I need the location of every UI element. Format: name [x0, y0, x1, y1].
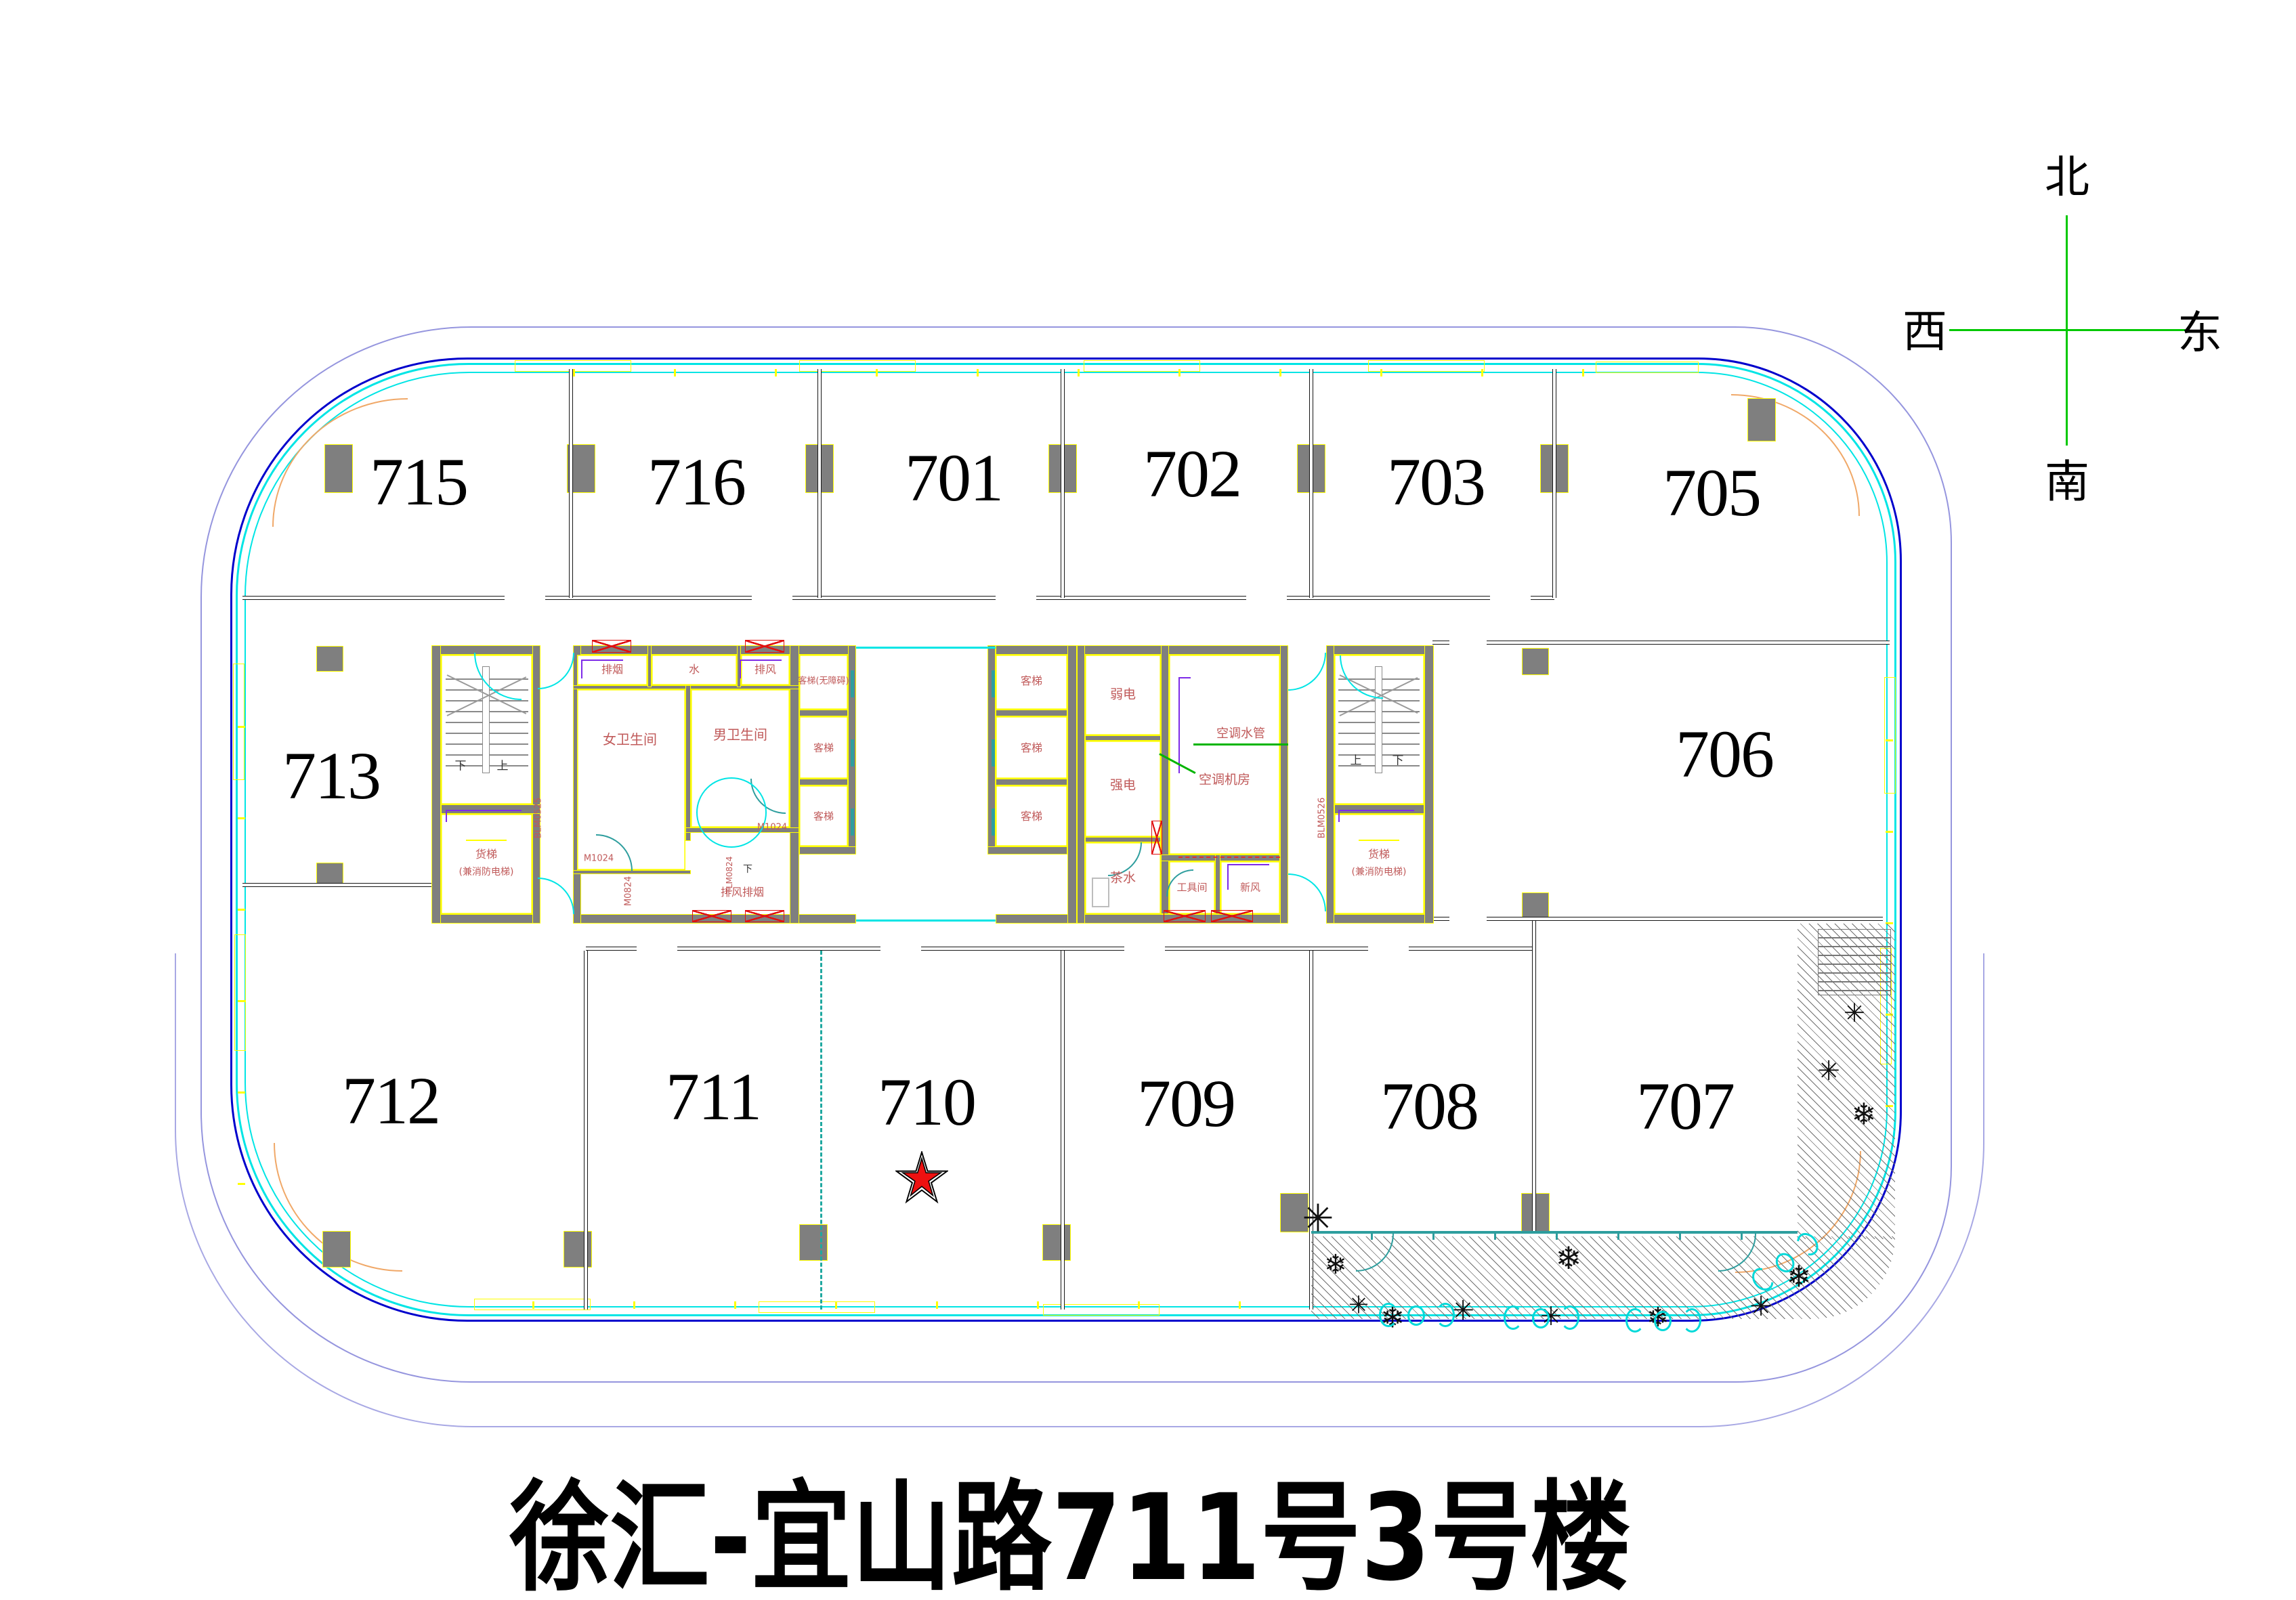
mullion-box: [233, 664, 245, 780]
gw: [1280, 645, 1288, 924]
fire-damper-icon: [745, 640, 784, 653]
sink: [1092, 878, 1109, 907]
floor-plan: ✳ ❄ ❄ ✳ ❄ ✳ ❄ ✳ ❄ ✳ ❄ ✳ ✳ 715 716 701 70…: [0, 0, 2296, 1600]
gap: [1124, 945, 1165, 952]
door-tag: M0824: [624, 876, 633, 906]
partition-wall: [1432, 917, 1883, 921]
mullion-box: [759, 1301, 875, 1313]
plant: ✳: [1302, 1197, 1334, 1241]
room-713-label: 713: [282, 742, 380, 810]
door-tag: M1024: [757, 823, 787, 832]
freight-lift-note: (兼消防电梯): [1352, 867, 1407, 877]
lift-label: 客梯: [813, 743, 834, 754]
room-705-label: 705: [1663, 459, 1760, 527]
gw: [996, 710, 1067, 716]
partition-wall: [1061, 951, 1065, 1310]
gap: [1449, 639, 1487, 646]
wc-women-label: 女卫生间: [603, 733, 657, 746]
plant: ✳: [1844, 998, 1865, 1028]
slit: [851, 670, 854, 697]
gw: [431, 914, 540, 924]
fu: [1682, 1308, 1701, 1333]
room-715-label: 715: [370, 448, 467, 516]
column: [322, 1231, 351, 1268]
room-716-label: 716: [647, 448, 745, 516]
gap: [1368, 945, 1409, 952]
dashed-partition: [820, 951, 822, 1310]
slit: [851, 808, 854, 836]
room-708-label: 708: [1380, 1073, 1478, 1140]
furniture-set: [1625, 1305, 1704, 1337]
partition-wall: [569, 369, 573, 598]
terrace-stair-icon: [1818, 929, 1891, 995]
lift-label: 客梯: [813, 812, 834, 822]
column: [324, 444, 353, 493]
plant: ✳: [1348, 1292, 1369, 1320]
mullion-box: [1596, 362, 1699, 373]
partition-wall: [242, 883, 433, 887]
freight-lift-west: [441, 814, 532, 914]
lift-accessible-label: 客梯(无障碍): [798, 677, 849, 686]
gw: [1067, 645, 1077, 924]
room-706-label: 706: [1676, 720, 1773, 788]
gw: [685, 685, 691, 841]
gw: [1161, 855, 1280, 861]
partition-wall: [584, 951, 588, 1310]
lift-label: 客梯: [1021, 676, 1042, 687]
compass-line-horizontal: [1949, 329, 2185, 331]
room-710-label: 710: [878, 1068, 975, 1136]
gap: [752, 594, 792, 601]
mullion-box: [799, 360, 916, 372]
fu: [1625, 1308, 1644, 1333]
furniture-set: [1504, 1303, 1582, 1334]
mullion-box: [1368, 360, 1485, 372]
stair-up-label: 上: [497, 761, 509, 773]
compass-west: 西: [1902, 309, 1947, 354]
furniture-set: [1379, 1300, 1458, 1331]
mullion-box: [474, 1299, 591, 1310]
slit: [851, 739, 854, 766]
room-707-label: 707: [1636, 1073, 1734, 1140]
abs: [856, 647, 996, 649]
mullion-box: [1084, 360, 1200, 372]
fu: [1504, 1305, 1523, 1330]
gw: [1326, 645, 1334, 924]
fu: [1560, 1305, 1579, 1330]
gw: [996, 779, 1067, 785]
pipe-icon: [1338, 810, 1414, 822]
gw: [996, 645, 1288, 655]
gw: [1161, 645, 1169, 914]
column: [1522, 892, 1549, 920]
freight-lift-label: 货梯: [475, 849, 497, 860]
gw: [799, 846, 856, 855]
door-tag: BLM0525: [534, 798, 543, 838]
gap: [1246, 594, 1287, 601]
freight-lift-label: 货梯: [1368, 849, 1390, 860]
room-702-label: 702: [1143, 440, 1241, 508]
door-tag: M1024: [584, 855, 614, 863]
fire-damper-icon: [745, 910, 784, 922]
mullion-box: [234, 934, 246, 1051]
wc-women: [577, 689, 685, 870]
partition-wall: [1061, 369, 1065, 598]
fire-damper-icon: [592, 640, 631, 653]
ac-room-label: 空调机房: [1199, 774, 1250, 787]
gap: [505, 594, 545, 601]
fu: [1772, 1249, 1798, 1276]
tea-room-label: 茶水: [1110, 872, 1136, 885]
slit: [992, 808, 995, 836]
slit: [992, 670, 995, 697]
gw: [431, 645, 441, 924]
plant: ❄: [1556, 1240, 1582, 1276]
compass-south: 南: [2045, 460, 2089, 504]
abs: [856, 920, 996, 922]
weak-power-label: 弱电: [1110, 689, 1136, 701]
mullion-box: [1884, 677, 1896, 794]
fire-damper-icon: [1151, 821, 1162, 855]
plant: ❄: [1324, 1249, 1347, 1280]
partition-wall: [1552, 369, 1556, 598]
room-711-label: 711: [666, 1063, 761, 1131]
plant: ✳: [1749, 1291, 1772, 1322]
gw: [1085, 837, 1161, 842]
room-701-label: 701: [905, 444, 1002, 512]
gap: [880, 945, 921, 952]
greenln: [1193, 743, 1288, 745]
mullion-box: [515, 360, 631, 372]
fire-damper-icon: [1164, 910, 1206, 922]
shaft-water-label: 水: [689, 664, 700, 675]
duct-centerline: [1178, 857, 1280, 858]
column: [1042, 1224, 1071, 1261]
stair-up-label: 上: [1351, 756, 1362, 767]
pipe-icon: [1178, 677, 1191, 773]
gw: [799, 779, 848, 785]
star-marker: [895, 1151, 948, 1204]
fu: [1407, 1305, 1425, 1326]
gw: [1077, 645, 1085, 924]
partition-wall: [1432, 641, 1890, 645]
gw: [1215, 855, 1220, 914]
fu: [1654, 1311, 1672, 1331]
room-709-label: 709: [1137, 1070, 1235, 1138]
gw: [1424, 645, 1434, 924]
plant: ✳: [1817, 1056, 1840, 1087]
door-tag: BLM0526: [1318, 798, 1327, 838]
freight-lift-east: [1334, 814, 1424, 914]
gap: [996, 594, 1036, 601]
room-703-label: 703: [1387, 448, 1485, 516]
fu: [1532, 1308, 1550, 1328]
slit: [992, 739, 995, 766]
gap: [1490, 594, 1531, 601]
shaft-exhaust-label: 排风: [754, 664, 776, 675]
partition-wall: [1532, 921, 1536, 1234]
corridor-wall: [242, 596, 1554, 600]
fu: [1379, 1303, 1398, 1327]
gap: [1449, 915, 1487, 922]
column: [1522, 648, 1549, 675]
gw: [987, 846, 1067, 855]
fire-damper-icon: [692, 910, 731, 922]
gw: [1326, 914, 1434, 924]
room-712-label: 712: [342, 1067, 440, 1135]
fu: [1436, 1303, 1455, 1327]
partition-wall: [1309, 369, 1313, 598]
gw: [1085, 735, 1161, 741]
freight-lift-note: (兼消防电梯): [459, 867, 514, 877]
compass-north: 北: [2045, 155, 2089, 200]
plant: ❄: [1852, 1098, 1877, 1132]
abs: [466, 840, 507, 841]
gw: [799, 710, 848, 716]
stair-down-label: 下: [455, 761, 467, 773]
shaft-smoke-label: 排烟: [601, 664, 623, 675]
fixture-circle: [696, 777, 767, 848]
tool-room-label: 工具间: [1176, 883, 1207, 893]
column: [316, 646, 343, 672]
gap: [637, 945, 677, 952]
column: [799, 1224, 828, 1261]
stair-down-label: 下: [743, 865, 752, 874]
lift-label: 客梯: [1021, 743, 1042, 754]
wc-men-label: 男卫生间: [713, 728, 767, 741]
pipe-icon: [446, 810, 522, 822]
abs: [1359, 840, 1399, 841]
ac-pipe-label: 空调水管: [1216, 728, 1265, 740]
door-tag: TLM0824: [725, 857, 734, 894]
gw: [1326, 645, 1434, 655]
column: [316, 863, 343, 886]
stair-down-label: 下: [1393, 756, 1404, 767]
column: [1747, 398, 1776, 441]
fire-damper-icon: [1211, 910, 1253, 922]
compass-east: 东: [2177, 311, 2222, 355]
fresh-air-label: 新风: [1240, 883, 1260, 893]
page-title: 徐汇-宜山路711号3号楼7F: [444, 1441, 1696, 1600]
partition-wall: [817, 369, 822, 598]
lift-label: 客梯: [1021, 811, 1042, 822]
strong-power-label: 强电: [1110, 779, 1136, 792]
